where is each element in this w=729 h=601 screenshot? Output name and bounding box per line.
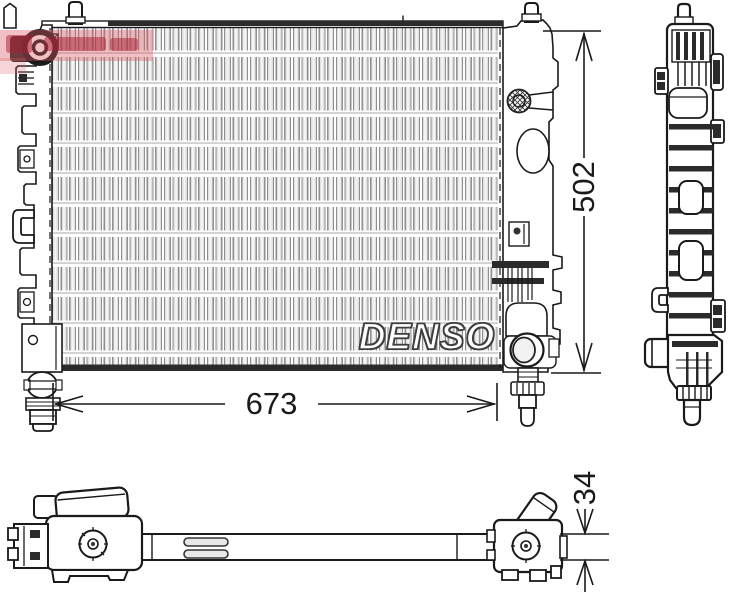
drawing-linework bbox=[0, 0, 729, 601]
radiator-technical-drawing: DENSO bbox=[0, 0, 729, 601]
side-bottom-outlet bbox=[645, 335, 722, 425]
red-watermark-overlay-lower bbox=[0, 58, 26, 74]
outlet-port-icon bbox=[504, 334, 559, 369]
left-hook-bracket bbox=[13, 210, 34, 243]
left-drain-plug bbox=[22, 324, 62, 431]
bottom-left-fitting bbox=[8, 487, 142, 582]
dimension-depth-label: 34 bbox=[569, 456, 601, 520]
right-drain-plug bbox=[511, 368, 544, 426]
red-watermark-blob bbox=[110, 38, 138, 51]
corner-bracket bbox=[4, 4, 16, 29]
bottom-tank-band bbox=[48, 365, 503, 372]
dimension-width-label: 673 bbox=[225, 386, 318, 422]
red-watermark-blob bbox=[44, 37, 106, 51]
dimension-height-label: 502 bbox=[567, 140, 601, 234]
side-view-drawing bbox=[645, 4, 725, 425]
bottom-right-fitting bbox=[487, 490, 567, 581]
red-watermark-blob bbox=[6, 35, 32, 53]
left-tank bbox=[13, 25, 58, 372]
top-tank-band bbox=[42, 16, 503, 28]
right-tank bbox=[492, 3, 562, 426]
red-watermark-overlay bbox=[0, 30, 153, 61]
left-mounting-pin bbox=[66, 2, 85, 24]
bottom-view-drawing bbox=[8, 487, 567, 582]
side-hook-bracket bbox=[652, 288, 668, 312]
front-view-drawing bbox=[4, 2, 562, 431]
